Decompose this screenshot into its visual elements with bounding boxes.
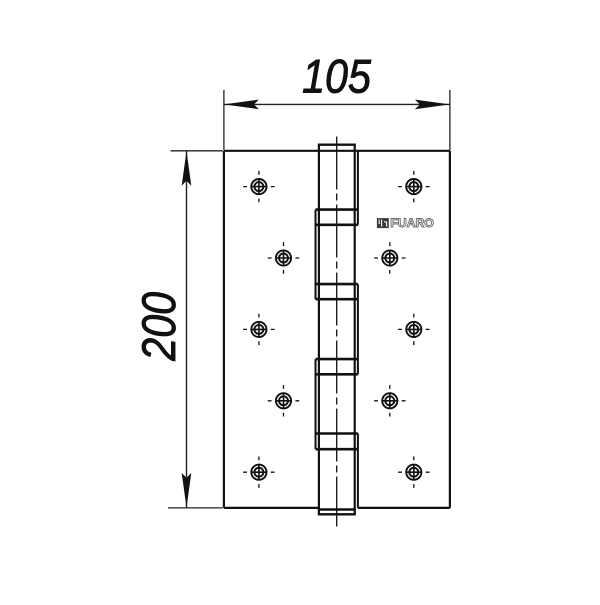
svg-text:105: 105 bbox=[302, 51, 371, 103]
svg-text:200: 200 bbox=[133, 292, 185, 362]
svg-text:FUARO: FUARO bbox=[390, 216, 434, 230]
